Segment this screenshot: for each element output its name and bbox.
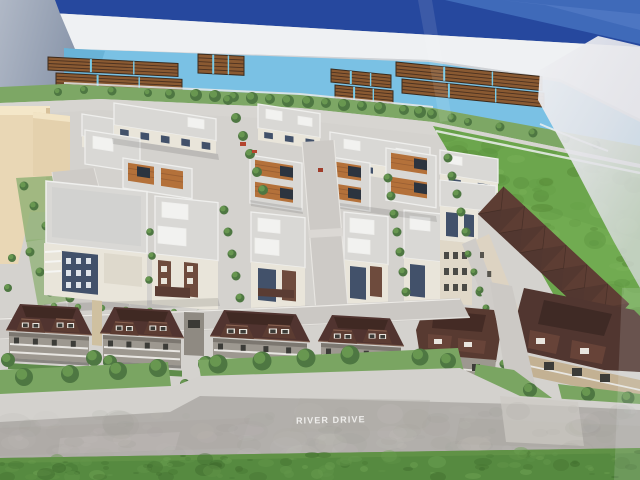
svg-text:RIVER DRIVE: RIVER DRIVE	[296, 414, 366, 425]
